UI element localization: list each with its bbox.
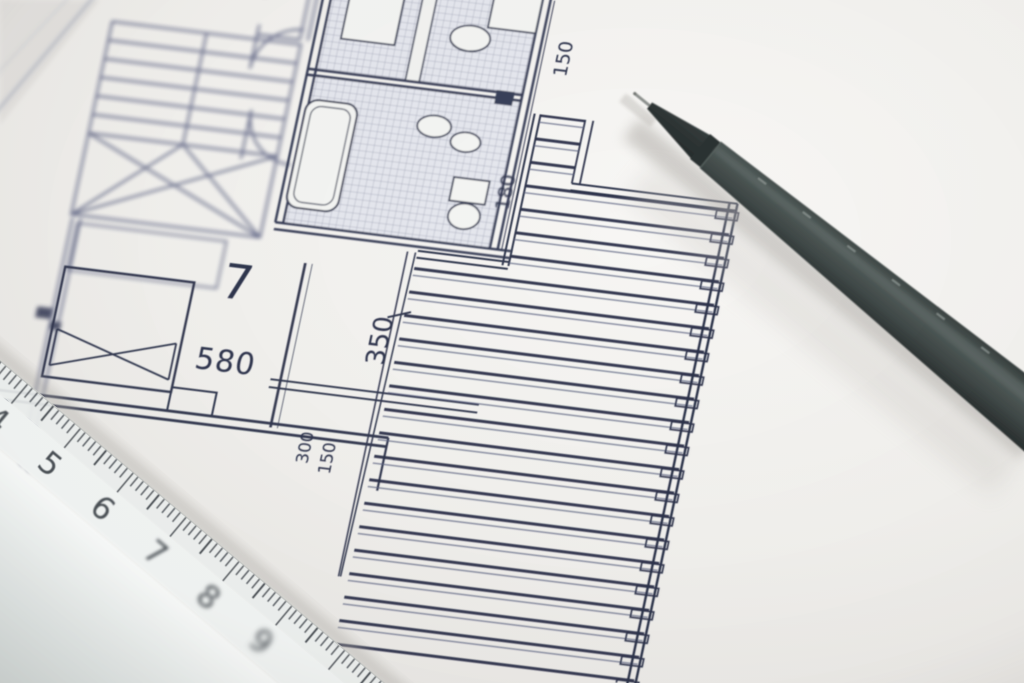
photo-of-floor-plan: 7 580 350 300 150 150 180: [0, 0, 1024, 683]
scene-canvas: 7 580 350 300 150 150 180: [0, 0, 1024, 683]
vignette-overlay: [0, 0, 1024, 683]
